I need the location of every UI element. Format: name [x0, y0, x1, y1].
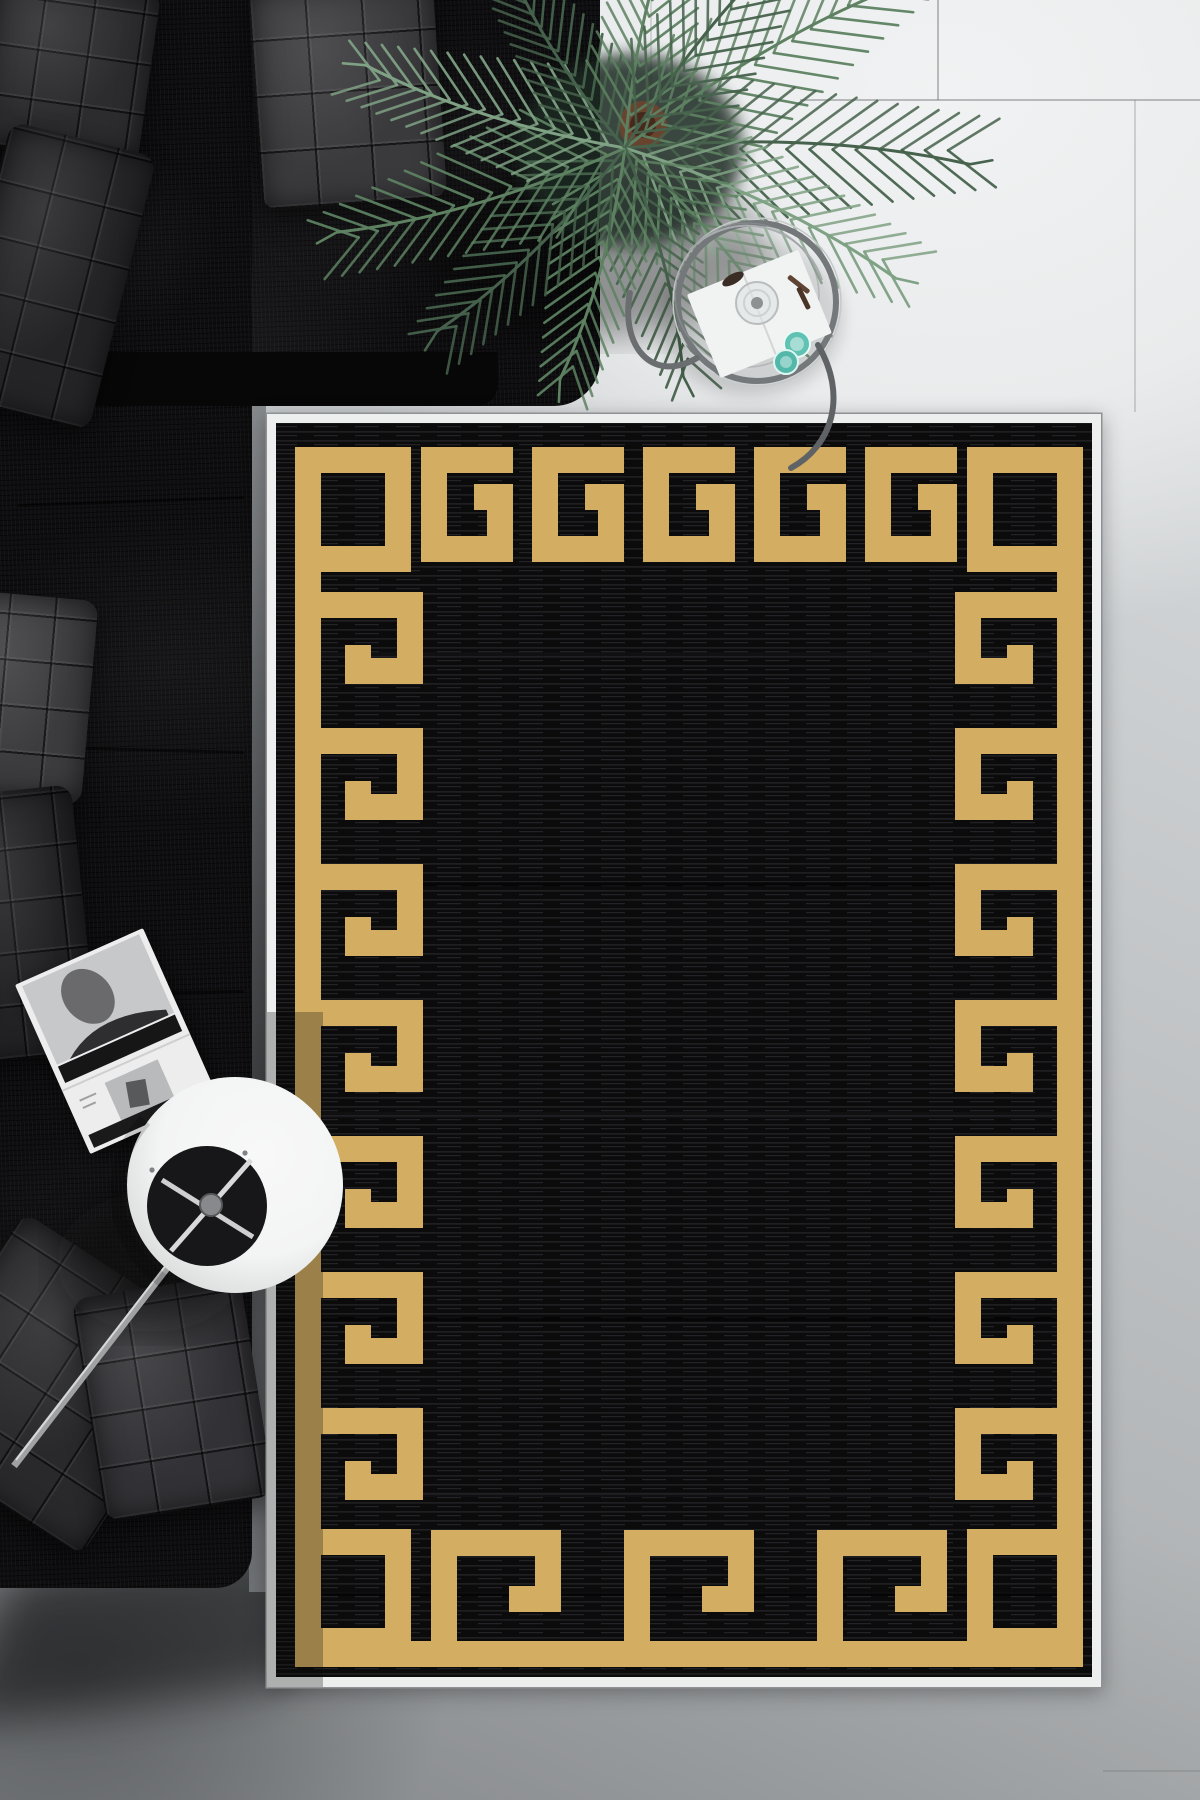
props-layer — [0, 0, 1200, 1800]
floor-lamp — [14, 1077, 343, 1466]
teal-glass-inner — [790, 337, 804, 351]
teal-glass-inner — [780, 356, 792, 368]
lamp-hub — [200, 1194, 222, 1216]
decanter-stopper — [751, 297, 763, 309]
lamp-screw — [242, 1150, 247, 1155]
lamp-screw — [149, 1167, 154, 1172]
scene — [0, 0, 1200, 1800]
